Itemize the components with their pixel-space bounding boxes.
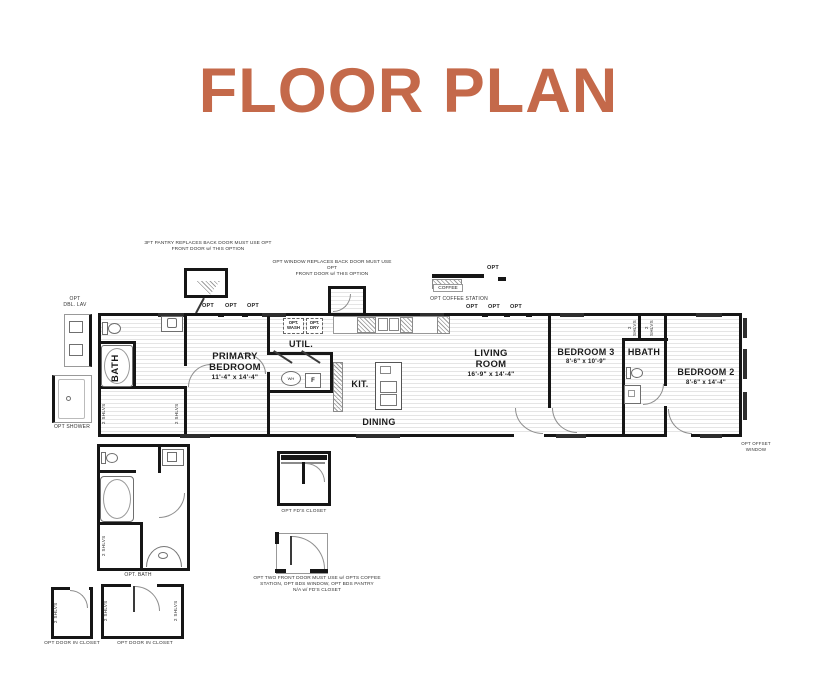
closet-shelves-label: 2 SHLVS	[644, 318, 653, 337]
counter-hatch	[437, 316, 450, 334]
window-marker	[498, 277, 506, 281]
wall	[100, 522, 142, 525]
dims-bedroom2: 8'-6" x 14'-4"	[674, 380, 738, 386]
shower-pan	[58, 379, 85, 419]
sink	[167, 452, 177, 462]
closet-shelves-label: 2 SHLVS	[101, 396, 110, 432]
window-marker	[743, 318, 747, 338]
opt-dryer: OPT. DRY	[306, 318, 323, 334]
dims-primary-bedroom: 11'-4" x 14'-4"	[198, 374, 272, 381]
wall	[548, 316, 551, 408]
room-label-kitchen: KIT.	[346, 379, 374, 389]
room-label-bedroom3: BEDROOM 3	[553, 347, 619, 357]
wall	[267, 316, 270, 354]
floor-plan-page: FLOOR PLAN 3FT PANTRY REPLACES BACK DOOR…	[0, 0, 817, 680]
wall	[622, 338, 668, 341]
opt-offset-window-caption: OPT OFFSET WINDOW	[734, 441, 778, 452]
coffee-station-caption: OPT COFFEE STATION	[424, 296, 494, 302]
shower-drain	[66, 396, 71, 401]
toilet-bowl	[106, 453, 118, 463]
coffee-station-wall	[432, 274, 484, 278]
opt-window-label: OPT	[488, 304, 500, 310]
wall	[101, 341, 134, 344]
closet-shelves-label: 2 SHLVS	[627, 318, 636, 337]
window-marker	[696, 313, 722, 317]
window-marker	[560, 313, 584, 317]
counter-hatch	[357, 317, 376, 333]
window-marker	[180, 434, 210, 438]
coffee-label: COFFEE	[433, 284, 463, 292]
opt-window-label: OPT	[510, 304, 522, 310]
closet-shelves-label: 2 SHLVS	[101, 529, 110, 563]
page-title: FLOOR PLAN	[0, 60, 817, 123]
kitchen-sink	[389, 318, 399, 331]
front-door-opening	[667, 433, 691, 438]
window-marker	[262, 313, 286, 317]
window-marker	[743, 349, 747, 379]
room-label-dining: DINING	[356, 417, 402, 427]
wall	[140, 522, 143, 569]
wall	[158, 447, 161, 473]
window-marker	[356, 434, 400, 438]
opt-dbl-lav-caption: OPT DBL. LAV	[57, 296, 93, 309]
wall	[267, 390, 332, 393]
closet-shelf-bar	[281, 455, 327, 460]
range	[400, 317, 413, 333]
sink	[69, 321, 83, 333]
wall	[638, 316, 641, 338]
dims-living: 16'-9" x 14'-4"	[455, 371, 527, 378]
sink	[167, 318, 177, 328]
toilet-bowl	[108, 323, 121, 334]
kitchen-sink	[378, 318, 388, 331]
room-label-bath: BATH	[110, 349, 126, 387]
opt-window-label: OPT	[225, 303, 237, 309]
island-sink	[380, 394, 397, 406]
island-sink	[380, 381, 397, 393]
closet-shelves-label: 2 SHLVS	[174, 396, 183, 432]
wall	[275, 569, 286, 573]
counter-hatch	[333, 362, 343, 412]
pantry-option-note: 3FT PANTRY REPLACES BACK DOOR MUST USE O…	[133, 241, 283, 253]
tub-basin	[103, 479, 131, 519]
sink	[69, 344, 83, 356]
window-marker	[700, 434, 722, 438]
shower-drain	[628, 390, 635, 397]
two-front-door-note: OPT TWO FRONT DOOR MUST USE w/ OPTS COFF…	[246, 576, 388, 595]
room-label-hbath: HBATH	[623, 347, 665, 357]
wall	[267, 372, 270, 434]
opt-window-label: OPT	[487, 265, 499, 271]
closet-shelves-label: 2 SHLVS	[173, 593, 182, 629]
closet-shelves-label: 2 SHLVS	[53, 595, 62, 631]
fridge: F	[305, 373, 321, 388]
wall	[664, 406, 667, 434]
wall	[184, 316, 187, 366]
sink	[158, 552, 168, 559]
room-label-primary-bedroom: PRIMARY BEDROOM	[200, 352, 270, 373]
opt-window-label: OPT	[247, 303, 259, 309]
dims-bedroom3: 8'-6" x 10'-9"	[555, 359, 617, 365]
toilet-bowl	[631, 368, 643, 378]
room-label-util: UTIL.	[278, 339, 324, 349]
closet-shelves-label: 2 SHLVS	[103, 593, 112, 629]
wall	[310, 569, 328, 573]
wall	[100, 470, 136, 473]
window-option-note: OPT WINDOW REPLACES BACK DOOR MUST USE O…	[268, 260, 396, 279]
window-marker	[556, 434, 586, 438]
opt-door-in-closet-caption: OPT DOOR IN CLOSET	[40, 641, 104, 647]
opt-washer: OPT. WASH	[283, 318, 304, 334]
opt-fds-closet-caption: OPT FD'S CLOSET	[274, 509, 334, 515]
island-fixture	[380, 366, 391, 374]
room-label-bedroom2: BEDROOM 2	[672, 367, 740, 377]
wall	[302, 462, 305, 484]
water-heater: WH	[281, 371, 301, 386]
opt-window-label: OPT	[466, 304, 478, 310]
opt-shower-caption: OPT SHOWER	[48, 424, 96, 430]
opt-door-in-closet-caption: OPT DOOR IN CLOSET	[108, 641, 182, 647]
opt-offset-window-marker	[743, 392, 747, 420]
wall	[275, 532, 279, 544]
room-label-living: LIVING ROOM	[460, 349, 522, 370]
wall	[184, 386, 187, 434]
opt-window-label: OPT	[202, 303, 214, 309]
opt-bath-caption: OPT. BATH	[108, 572, 168, 578]
wall	[133, 341, 136, 388]
